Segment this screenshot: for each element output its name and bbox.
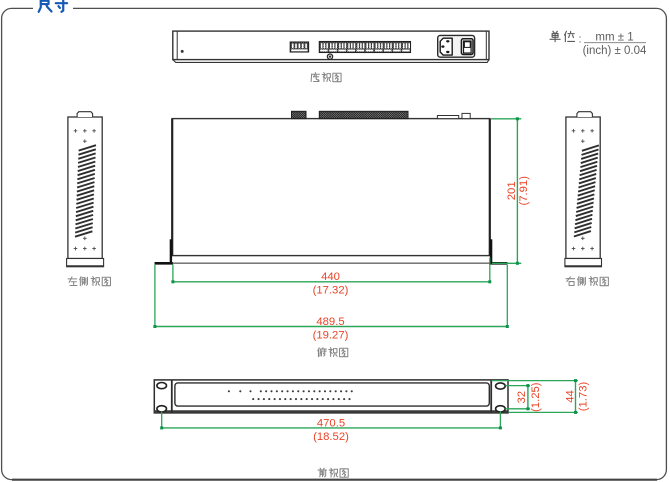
svg-text:(inch) ± 0.04: (inch) ± 0.04 [583, 45, 647, 57]
svg-text:470.5: 470.5 [317, 417, 345, 429]
svg-text::: : [579, 34, 582, 46]
svg-text:(7.91): (7.91) [518, 176, 530, 206]
svg-text:(1.25): (1.25) [530, 382, 542, 412]
svg-text:(17.32): (17.32) [313, 285, 349, 297]
svg-text:32: 32 [516, 391, 528, 404]
svg-text:mm ± 1: mm ± 1 [595, 32, 633, 44]
svg-text:440: 440 [321, 271, 340, 283]
svg-text:44: 44 [564, 390, 576, 403]
svg-text:(19.27): (19.27) [313, 330, 349, 342]
svg-text:(1.73): (1.73) [577, 382, 589, 412]
svg-text:(18.52): (18.52) [313, 431, 349, 443]
svg-text:201: 201 [506, 181, 518, 200]
svg-text:489.5: 489.5 [316, 316, 344, 328]
